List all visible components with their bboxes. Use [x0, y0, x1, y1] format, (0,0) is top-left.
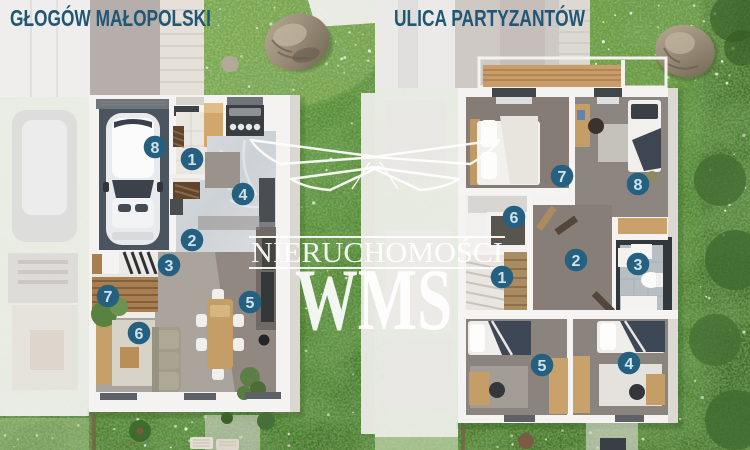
svg-text:7: 7 — [558, 169, 567, 186]
svg-text:4: 4 — [625, 356, 634, 373]
svg-text:3: 3 — [634, 257, 643, 274]
svg-text:2: 2 — [188, 233, 197, 250]
svg-text:WMS: WMS — [295, 252, 452, 349]
svg-text:8: 8 — [634, 177, 643, 194]
svg-text:6: 6 — [510, 210, 519, 227]
svg-text:5: 5 — [538, 358, 547, 375]
svg-text:5: 5 — [246, 295, 255, 312]
svg-text:1: 1 — [188, 152, 197, 169]
svg-text:1: 1 — [498, 270, 507, 287]
svg-text:ULICA PARTYZANTÓW: ULICA PARTYZANTÓW — [394, 4, 585, 31]
svg-text:6: 6 — [135, 326, 144, 343]
svg-text:4: 4 — [239, 187, 248, 204]
svg-text:8: 8 — [151, 140, 160, 157]
svg-text:GŁOGÓW MAŁOPOLSKI: GŁOGÓW MAŁOPOLSKI — [10, 4, 211, 31]
svg-text:7: 7 — [104, 289, 113, 306]
svg-text:2: 2 — [572, 253, 581, 270]
svg-text:3: 3 — [165, 258, 174, 275]
